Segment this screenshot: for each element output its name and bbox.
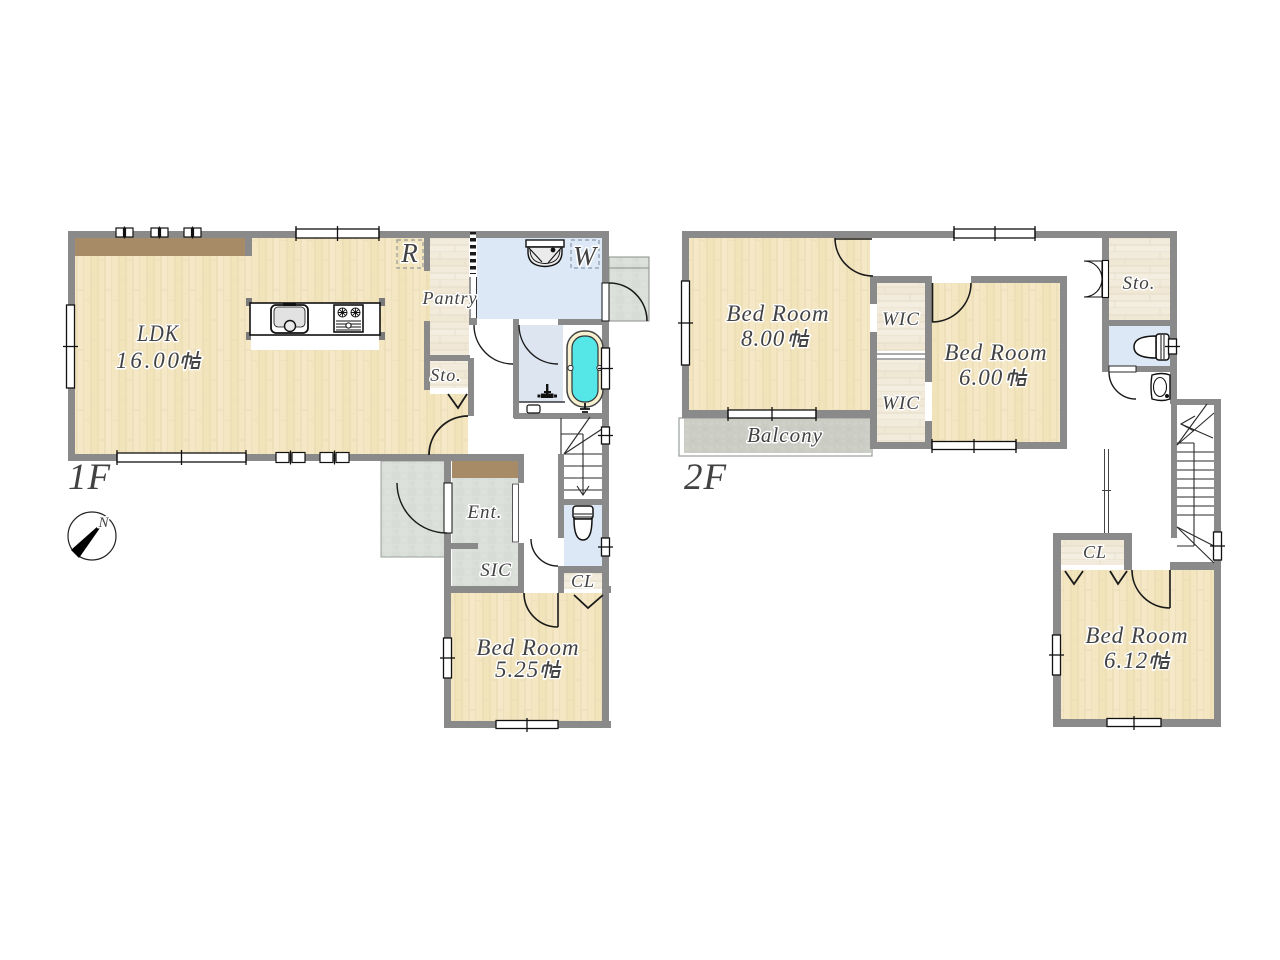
svg-text:Bed Room: Bed Room	[1085, 623, 1188, 648]
svg-text:16.00: 16.00	[116, 348, 180, 373]
svg-text:Sto.: Sto.	[430, 365, 462, 385]
svg-text:SIC: SIC	[480, 560, 512, 581]
svg-text:1F: 1F	[68, 457, 111, 498]
svg-text:R: R	[400, 238, 419, 268]
svg-text:6.12: 6.12	[1104, 648, 1148, 673]
svg-text:Bed Room: Bed Room	[726, 301, 829, 326]
svg-text:5.25: 5.25	[495, 657, 539, 682]
svg-text:Balcony: Balcony	[747, 423, 823, 447]
svg-text:WIC: WIC	[882, 309, 920, 330]
svg-text:2F: 2F	[684, 457, 727, 498]
svg-text:Sto.: Sto.	[1122, 273, 1155, 294]
svg-text:CL: CL	[571, 571, 595, 591]
svg-text:Bed Room: Bed Room	[944, 340, 1047, 365]
svg-text:LDK: LDK	[136, 321, 179, 346]
svg-text:Ent.: Ent.	[466, 502, 502, 523]
svg-text:N: N	[97, 515, 109, 531]
svg-text:8.00: 8.00	[741, 326, 785, 351]
svg-text:6.00: 6.00	[959, 365, 1003, 390]
svg-text:WIC: WIC	[882, 393, 920, 414]
svg-text:Pantry: Pantry	[422, 288, 478, 308]
svg-text:W: W	[573, 241, 599, 271]
svg-text:CL: CL	[1083, 542, 1107, 562]
